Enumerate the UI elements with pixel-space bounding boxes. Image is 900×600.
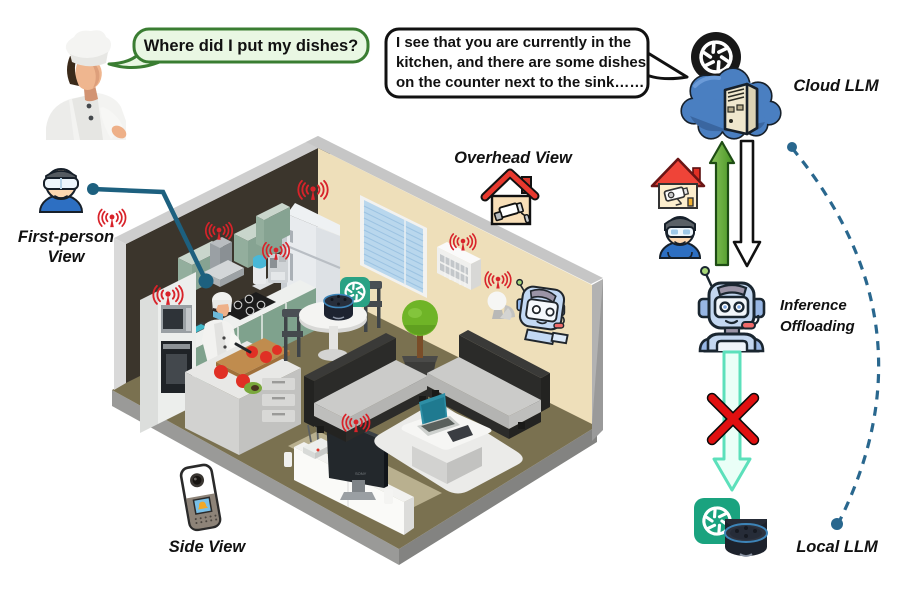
svg-text:Cloud LLM: Cloud LLM	[793, 77, 879, 95]
svg-text:SONY: SONY	[355, 471, 367, 476]
svg-text:Local LLM: Local LLM	[796, 538, 879, 556]
svg-text:Overhead View: Overhead View	[454, 149, 573, 167]
svg-text:View: View	[48, 248, 86, 266]
svg-text:I see that you are currently i: I see that you are currently in the	[396, 34, 631, 51]
svg-text:kitchen, and there are some di: kitchen, and there are some dishes	[396, 54, 646, 71]
svg-text:on the counter next to the sin: on the counter next to the sink……	[396, 74, 644, 91]
svg-text:Offloading: Offloading	[780, 318, 855, 335]
svg-text:Where did I put my dishes?: Where did I put my dishes?	[144, 37, 359, 55]
svg-text:Inference: Inference	[780, 297, 847, 314]
svg-text:Side View: Side View	[169, 538, 247, 556]
svg-text:First-person: First-person	[18, 228, 114, 246]
